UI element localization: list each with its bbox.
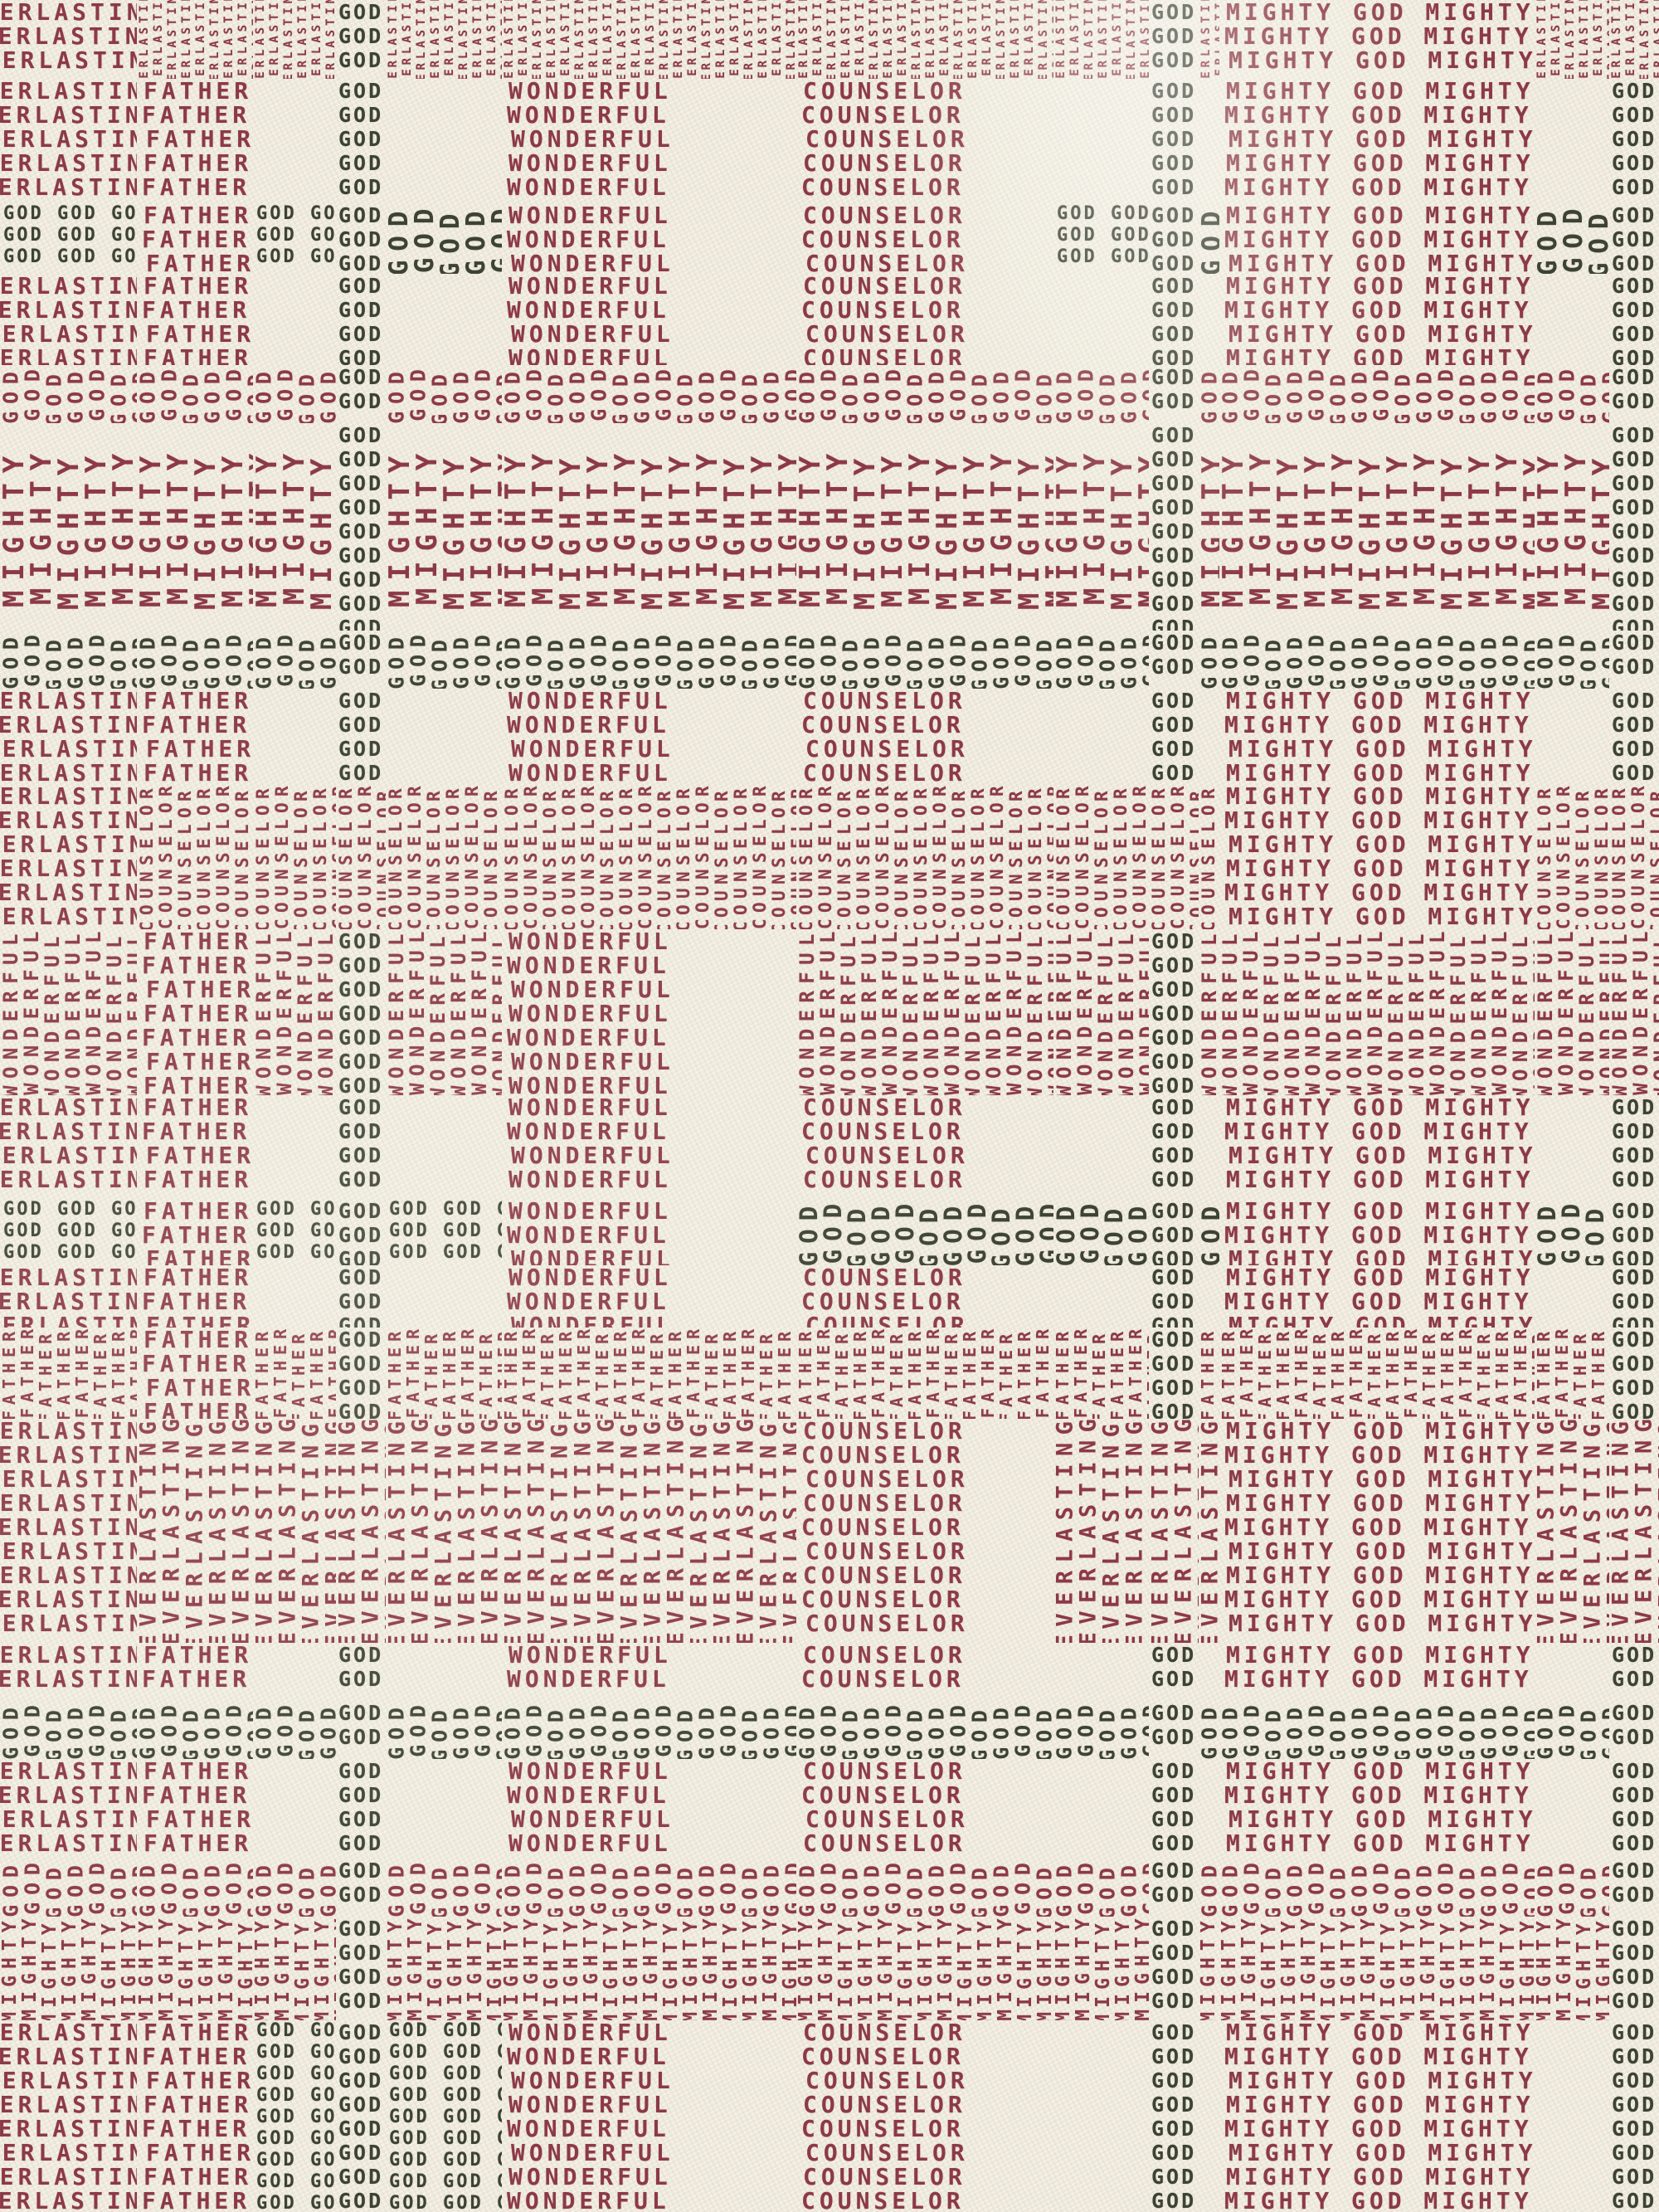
rotated-word-column-mighty: MIGHTY	[1594, 1917, 1609, 2020]
rotated-word-column-mighty: MIGHTY	[82, 423, 109, 631]
rotated-word-everlasting: EVERLASTING	[559, 0, 572, 79]
word-line-counselor: COUNSELOR	[796, 2117, 1052, 2141]
word-line-god: GOD	[336, 1917, 386, 1941]
plaid-cell-h-father: FATHERFATHERFATHERFATHER	[137, 274, 253, 365]
word-line-god: GOD	[336, 1400, 386, 1419]
rotated-word-counselor: COUNSELOR	[424, 785, 444, 929]
plaid-cell-v-father: FATHERFATHERFATHERFATHERFATHERFATHERFATH…	[0, 1328, 137, 1419]
rotated-word-column-wonderful: WONDERFUL	[274, 929, 294, 1095]
rotated-word-column-wonderful: WONDERFUL	[1406, 929, 1427, 1095]
rotated-word-father: FATHER	[36, 1328, 56, 1419]
rotated-word-everlasting: EVERLASTING	[594, 1419, 620, 1643]
rotated-word-god: GOD	[450, 1859, 474, 1917]
rotated-word-column-god: GOD	[1599, 1859, 1609, 1917]
rotated-word-column-god: GOD	[275, 631, 296, 689]
rotated-word-column-god: GOD	[386, 203, 411, 274]
plaid-cell-c-god: GODGODGODGOD	[336, 274, 386, 365]
rotated-word-god: GOD	[990, 631, 1014, 689]
rotated-word-column-mighty: MIGHTY	[621, 1917, 641, 2020]
rotated-word-column-father: FATHER	[557, 1328, 575, 1419]
rotated-word-god: GOD	[523, 1701, 547, 1757]
rotated-word-father: FATHER	[1383, 1328, 1403, 1419]
word-line-god: GOD	[1149, 1725, 1199, 1749]
word-line-father: FATHER	[137, 1119, 251, 1143]
rotated-word-father: FATHER	[1107, 1328, 1127, 1419]
rotated-word-counselor: COUNSELOR	[1573, 785, 1593, 929]
rotated-word-column-father: FATHER	[1090, 1328, 1108, 1419]
rotated-word-god: GOD	[1053, 1701, 1077, 1759]
rotated-word-god: GOD	[1598, 1859, 1610, 1917]
rotated-word-everlasting: EVERLASTING	[1610, 0, 1623, 79]
rotated-word-column-god: GOD	[1075, 631, 1097, 689]
word-line-god: GOD	[336, 592, 386, 616]
rotated-word-column-counselor: COUNSELOR	[597, 784, 616, 929]
word-line-god: GOD	[1149, 2189, 1199, 2212]
word-line-everlasting: EVERLASTING	[0, 2117, 135, 2141]
rotated-word-god: GOD	[1520, 1860, 1535, 1917]
word-line-repeated-god: GOD GOD GOD	[253, 203, 336, 225]
word-line-everlasting: EVERLASTING	[0, 1119, 135, 1143]
word-line-god: GOD	[336, 79, 386, 103]
word-line-counselor: COUNSELOR	[796, 151, 1053, 175]
rotated-word-column-counselor: COUNSELOR	[1073, 784, 1092, 929]
word-line-god: GOD	[336, 616, 386, 631]
rotated-word-god: GOD	[1456, 1703, 1480, 1759]
rotated-word-column-counselor: COUNSELOR	[1092, 784, 1111, 929]
plaid-cell-blank	[1053, 2020, 1149, 2212]
word-line-father: FATHER	[137, 761, 253, 784]
rotated-word-everlasting: EVERLASTING	[882, 0, 895, 79]
rotated-word-column-mighty: MIGHTY	[1520, 423, 1535, 631]
rotated-word-column-counselor: COUNSELOR	[1647, 784, 1659, 929]
rotated-word-god: GOD	[386, 365, 409, 423]
rotated-word-god: GOD	[566, 631, 590, 689]
rotated-word-god: GOD	[21, 631, 45, 687]
rotated-word-father: FATHER	[1511, 1328, 1530, 1418]
word-line-counselor: COUNSELOR	[796, 2020, 1053, 2044]
rotated-word-god: GOD	[274, 631, 298, 687]
rotated-word-counselor: COUNSELOR	[253, 784, 273, 929]
plaid-cell-v-mighty: MIGHTYMIGHTYMIGHTYMIGHTYMIGHTYMIGHTYMIGH…	[502, 423, 796, 631]
word-line-father: FATHER	[137, 346, 253, 365]
plaid-cell-v-god: GODGODGODGOD	[1535, 631, 1609, 689]
rotated-word-god: GOD	[0, 631, 23, 689]
rotated-word-god: GOD	[652, 365, 676, 421]
rotated-word-everlasting: EVERLASTING	[1638, 0, 1652, 79]
rotated-word-father: FATHER	[1237, 1328, 1257, 1418]
rotated-word-column-mighty: MIGHTY	[1199, 423, 1219, 631]
rotated-word-column-god: GOD	[108, 1859, 129, 1917]
rotated-word-column-god: GOD	[65, 1859, 86, 1917]
word-line-everlasting: EVERLASTING	[0, 1491, 137, 1515]
plaid-cell-v-god: GODGODGODGODGODGODGODGODGODGODGODGODGODG…	[1219, 631, 1535, 689]
rotated-word-column-god: GOD	[839, 1859, 861, 1917]
rotated-word-column-god: GOD	[86, 631, 108, 689]
rotated-word-god: GOD	[406, 1859, 431, 1915]
word-line-counselor: COUNSELOR	[799, 1611, 1053, 1635]
plaid-cell-v-everlasting: EVERLASTINGEVERLASTINGEVERLASTINGEVERLAS…	[253, 0, 336, 79]
rotated-word-everlasting: EVERLASTING	[322, 1419, 337, 1643]
rotated-word-god: GOD	[1391, 367, 1415, 423]
word-line-counselor: COUNSELOR	[799, 1143, 1053, 1167]
rotated-word-column-god: GOD	[1053, 1859, 1075, 1917]
rotated-word-column-god: GOD	[502, 631, 523, 689]
rotated-word-wonderful: WONDERFUL	[899, 929, 922, 1095]
rotated-word-god: GOD	[652, 1701, 676, 1757]
rotated-word-column-god: GOD	[904, 1701, 926, 1759]
rotated-word-god: GOD	[1370, 1859, 1394, 1915]
rotated-word-counselor: COUNSELOR	[213, 784, 233, 928]
rotated-word-mighty: MIGHTY	[521, 1917, 542, 2020]
plaid-cell-v-wonderful: WONDERFULWONDERFULWONDERFULWONDERFULWOND…	[796, 929, 1053, 1095]
word-line-wonderful: WONDERFUL	[504, 127, 796, 151]
rotated-word-father: FATHER	[386, 1328, 405, 1419]
rotated-word-god: GOD	[566, 1701, 590, 1759]
word-line-wonderful: WONDERFUL	[502, 1026, 795, 1050]
rotated-word-column-mighty: MIGHTY	[611, 423, 639, 631]
rotated-word-god: GOD	[946, 1701, 971, 1757]
rotated-word-god: GOD	[158, 1701, 182, 1757]
rotated-word-mighty: MIGHTY	[955, 1917, 976, 2020]
rotated-word-father: FATHER	[1310, 1328, 1330, 1419]
word-line-god: GOD	[1149, 1701, 1199, 1725]
rotated-word-column-god: GOD	[1140, 1701, 1149, 1759]
word-line-god: GOD	[1149, 1223, 1199, 1247]
plaid-cell-v-counselor: COUNSELORCOUNSELORCOUNSELORCOUNSELORCOUN…	[137, 784, 253, 929]
rotated-word-god: GOD	[903, 367, 927, 423]
rotated-word-column-everlasting: EVERLASTING	[359, 1419, 382, 1643]
rotated-word-column-mighty: MIGHTY	[542, 1917, 562, 2020]
plaid-cell-c-god: GODGODGODGOD	[336, 1328, 386, 1419]
rotated-word-god: GOD	[925, 365, 949, 423]
rotated-word-column-god: GOD	[796, 1859, 818, 1917]
plaid-cell-v-counselor: COUNSELORCOUNSELORCOUNSELOR	[336, 784, 386, 929]
plaid-cell-h-counselor: COUNSELORCOUNSELORCOUNSELORCOUNSELOR	[796, 1759, 1053, 1859]
rotated-word-column-god: GOD	[1306, 631, 1327, 689]
rotated-word-god: GOD	[42, 1703, 66, 1759]
word-line-god: GOD	[336, 203, 386, 227]
word-line-repeated-mighty_god: MIGHTY GOD MIGHTY GOD	[1222, 1611, 1535, 1635]
rotated-word-god: GOD	[882, 365, 906, 421]
rotated-word-mighty: MIGHTY	[975, 1917, 996, 2020]
rotated-word-god: GOD	[129, 631, 138, 689]
rotated-word-father: FATHER	[325, 1328, 336, 1418]
rotated-word-mighty: MIGHTY	[1477, 1917, 1499, 2020]
plaid-cell-blank	[253, 689, 336, 784]
rotated-word-god: GOD	[781, 1859, 797, 1915]
rotated-word-god: GOD	[1074, 1701, 1098, 1757]
rotated-word-column-god: GOD	[1535, 365, 1556, 423]
rotated-word-mighty: MIGHTY	[581, 1917, 602, 2020]
rotated-word-column-father: FATHER	[55, 1328, 73, 1419]
rotated-word-column-counselor: COUNSELOR	[815, 784, 834, 929]
rotated-word-everlasting: EVERLASTING	[531, 0, 544, 79]
word-line-repeated-mighty_god: MIGHTY GOD MIGHTY GOD	[1219, 2020, 1535, 2044]
word-line-god: GOD	[336, 631, 386, 655]
word-line-repeated-mighty_god: MIGHTY GOD MIGHTY GOD	[1219, 274, 1535, 298]
word-line-repeated-god: GOD GOD GOD GOD	[0, 203, 137, 225]
rotated-word-column-father: FATHER	[308, 1328, 326, 1419]
rotated-word-god: GOD	[860, 1859, 884, 1917]
rotated-word-god: GOD	[295, 1860, 319, 1917]
rotated-word-everlasting: EVERLASTING	[415, 0, 428, 79]
plaid-cell-v-god: GOD	[1199, 1701, 1219, 1759]
plaid-cell-v-wonderful: WONDERFULWONDERFULWONDERFULWONDERFULWOND…	[386, 929, 502, 1095]
rotated-word-column-mighty: MIGHTY	[584, 423, 611, 631]
rotated-word-everlasting: EVERLASTING	[1125, 0, 1138, 79]
word-line-repeated-mighty_god: MIGHTY GOD MIGHTY GOD	[1219, 2165, 1535, 2189]
plaid-cell-c-god: GODGODGODGOD	[336, 1759, 386, 1859]
rotated-word-column-god: GOD	[844, 1199, 868, 1265]
plaid-cell-blank	[1535, 1759, 1609, 1859]
rotated-word-god: GOD	[760, 1859, 784, 1917]
rotated-word-god: GOD	[1391, 632, 1415, 689]
word-line-god: GOD	[1149, 1119, 1199, 1143]
plaid-cell-c-god: GODGODGODGOD	[1609, 1095, 1659, 1199]
plaid-cell-v-wonderful: WONDERFULWONDERFULWONDERFULWONDERFUL	[1535, 929, 1609, 1095]
rotated-word-god: GOD	[1499, 631, 1523, 687]
rotated-word-wonderful: WONDERFUL	[406, 929, 429, 1095]
rotated-word-column-counselor: COUNSELOR	[1111, 784, 1130, 929]
rotated-word-column-mighty: MIGHTY	[445, 1917, 465, 2020]
rotated-word-god: GOD	[652, 631, 676, 687]
rotated-word-god: GOD	[493, 1860, 503, 1917]
rotated-word-wonderful: WONDERFUL	[920, 929, 943, 1095]
rotated-word-wonderful: WONDERFUL	[294, 929, 317, 1095]
rotated-word-column-father: FATHER	[1402, 1328, 1420, 1419]
rotated-word-god: GOD	[544, 1860, 568, 1917]
rotated-word-god: GOD	[428, 1703, 452, 1759]
word-line-father: FATHER	[137, 1265, 253, 1289]
rotated-word-god: GOD	[1584, 204, 1610, 274]
word-line-god: GOD	[1149, 151, 1199, 175]
rotated-word-column-everlasting: EVERLASTING	[1591, 0, 1605, 79]
rotated-word-column-god: GOD	[969, 1701, 990, 1759]
rotated-word-column-wonderful: WONDERFUL	[1095, 929, 1116, 1095]
rotated-word-column-everlasting: EVERLASTING	[1100, 1419, 1123, 1643]
word-line-god: GOD	[1149, 103, 1199, 127]
rotated-word-column-god: GOD	[318, 365, 336, 423]
rotated-word-god: GOD	[1326, 1860, 1350, 1917]
rotated-word-counselor: COUNSELOR	[559, 784, 579, 929]
word-line-god: GOD	[1149, 1859, 1199, 1883]
rotated-word-column-counselor: COUNSELOR	[336, 784, 355, 929]
rotated-word-god: GOD	[1305, 1701, 1329, 1757]
plaid-cell-blank	[253, 79, 336, 203]
rotated-word-column-god: GOD	[674, 631, 696, 689]
word-line-repeated-mighty_god: MIGHTY GOD MIGHTY GOD	[1219, 0, 1535, 24]
rotated-word-column-god: GOD	[989, 1199, 1013, 1265]
word-line-god: GOD	[336, 2141, 386, 2165]
rotated-word-column-god: GOD	[820, 1199, 844, 1265]
rotated-word-column-everlasting: EVERLASTING	[253, 1419, 276, 1643]
plaid-row: MIGHTYMIGHTYMIGHTYMIGHTYMIGHTYMIGHTYMIGH…	[0, 1917, 1659, 2020]
rotated-word-mighty: MIGHTY	[1338, 1917, 1360, 2020]
word-line-god: GOD	[1149, 447, 1199, 471]
rotated-word-column-mighty: MIGHTY	[1093, 1917, 1113, 2020]
plaid-cell-v-god: GODGODGODGODGODGODGODGODGODGODGODGODGODG…	[502, 631, 796, 689]
word-line-repeated-god: GOD GOD GOD	[253, 225, 336, 246]
rotated-word-everlasting: EVERLASTING	[868, 0, 881, 79]
rotated-word-god: GOD	[1199, 631, 1219, 689]
plaid-cell-c-god: GODGOD	[1609, 1701, 1659, 1759]
rotated-word-father: FATHER	[702, 1328, 722, 1419]
rotated-word-column-god: GOD	[947, 1701, 969, 1759]
rotated-word-column-everlasting: EVERLASTING	[1053, 0, 1068, 79]
word-line-repeated-god: GOD GOD GOD	[386, 2085, 502, 2107]
rotated-word-column-mighty: MIGHTY	[1498, 1917, 1518, 2020]
plaid-cell-v-god: GODGODGODGOD	[1535, 365, 1609, 423]
word-line-repeated-mighty_god: MIGHTY GOD MIGHTY GOD	[1219, 689, 1535, 713]
plaid-cell-v-god: GODGODGODGOD	[1535, 1199, 1609, 1265]
rotated-word-column-mighty: MIGHTY	[197, 1917, 216, 2020]
plaid-cell-v-everlasting: EVERLASTINGEVERLASTINGEVERLASTING	[336, 1419, 386, 1643]
rotated-word-god: GOD	[1096, 632, 1120, 689]
rotated-word-column-god: GOD	[653, 1859, 674, 1917]
rotated-word-god: GOD	[609, 1703, 633, 1759]
word-line-god: GOD	[336, 2117, 386, 2141]
word-line-wonderful: WONDERFUL	[502, 1095, 796, 1119]
rotated-word-everlasting: EVERLASTING	[545, 0, 558, 79]
rotated-word-god: GOD	[253, 1859, 276, 1917]
rotated-word-father: FATHER	[720, 1328, 740, 1419]
plaid-cell-h-wonderful: WONDERFULWONDERFULWONDERFULWONDERFUL	[502, 1759, 796, 1859]
rotated-word-column-god: GOD	[917, 1199, 941, 1265]
word-line-god: GOD	[1609, 1265, 1659, 1289]
rotated-word-counselor: COUNSELOR	[635, 784, 655, 928]
rotated-word-column-god: GOD	[180, 1859, 202, 1917]
rotated-word-everlasting: EVERLASTING	[839, 0, 853, 79]
rotated-word-column-wonderful: WONDERFUL	[21, 929, 41, 1095]
rotated-word-god: GOD	[137, 1701, 160, 1759]
rotated-word-column-god: GOD	[1118, 365, 1140, 423]
rotated-word-column-counselor: COUNSELOR	[731, 784, 750, 929]
rotated-word-god: GOD	[817, 1859, 841, 1915]
word-line-counselor: COUNSELOR	[796, 79, 1053, 103]
rotated-word-god: GOD	[717, 1701, 741, 1757]
plaid-cell-h-mighty_god: MIGHTY GOD MIGHTY GODMIGHTY GOD MIGHTY G…	[1219, 689, 1535, 784]
word-line-father: FATHER	[137, 203, 253, 227]
plaid-cell-c-god: GODGODGODGOD	[336, 1917, 386, 2020]
rotated-word-god: GOD	[1139, 631, 1150, 687]
rotated-word-god: GOD	[1499, 365, 1523, 421]
word-line-god: GOD	[1609, 1965, 1659, 1989]
rotated-word-counselor: COUNSELOR	[854, 784, 873, 929]
word-line-repeated-god: GOD GOD GOD	[386, 2107, 502, 2128]
word-line-counselor: COUNSELOR	[796, 1095, 1053, 1119]
rotated-word-column-wonderful: WONDERFUL	[921, 929, 941, 1095]
rotated-word-column-god: GOD	[223, 1859, 245, 1917]
rotated-word-god: GOD	[738, 367, 762, 423]
rotated-word-god: GOD	[1096, 1860, 1120, 1917]
plaid-cell-h-counselor: COUNSELORCOUNSELORCOUNSELORCOUNSELOR	[796, 274, 1053, 365]
rotated-word-column-wonderful: WONDERFUL	[1447, 929, 1468, 1095]
rotated-word-column-mighty: MIGHTY	[701, 1917, 721, 2020]
rotated-word-wonderful: WONDERFUL	[489, 929, 503, 1095]
rotated-word-column-god: GOD	[782, 365, 796, 423]
rotated-word-column-god: GOD	[0, 1701, 22, 1759]
rotated-word-column-father: FATHER	[869, 1328, 888, 1419]
rotated-word-counselor: COUNSELOR	[232, 785, 252, 929]
rotated-word-father: FATHER	[1570, 1328, 1590, 1419]
plaid-cell-blank	[1535, 2020, 1609, 2212]
word-line-repeated-god: GOD GOD GOD	[253, 2085, 336, 2107]
word-line-repeated-mighty_god: MIGHTY GOD MIGHTY GOD	[1219, 808, 1533, 832]
word-line-god: GOD	[1149, 2117, 1199, 2141]
rotated-word-everlasting: EVERLASTING	[573, 0, 586, 79]
plaid-cell-g-god: GOD GOD GODGOD GOD GODGOD GOD GODGOD GOD…	[253, 2020, 336, 2212]
word-line-father: FATHER	[137, 1167, 253, 1191]
rotated-word-counselor: COUNSELOR	[968, 784, 988, 929]
rotated-word-wonderful: WONDERFUL	[1199, 929, 1219, 1095]
rotated-word-mighty: MIGHTY	[1278, 1917, 1300, 2020]
rotated-word-everlasting: EVERLASTING	[1099, 1419, 1125, 1643]
plaid-cell-c-god: GODGODGODGODGOD	[1149, 79, 1199, 203]
rotated-word-column-god: GOD	[429, 1859, 450, 1917]
rotated-word-column-god: GOD	[1219, 631, 1241, 689]
word-line-repeated-mighty_god: MIGHTY GOD MIGHTY GOD	[1222, 251, 1535, 274]
rotated-word-column-god: GOD	[947, 631, 969, 689]
rotated-word-god: GOD	[544, 632, 568, 689]
word-line-god: GOD	[336, 1807, 386, 1831]
rotated-word-column-counselor: COUNSELOR	[578, 784, 597, 929]
rotated-word-column-god: GOD	[883, 365, 904, 423]
rotated-word-wonderful: WONDERFUL	[1239, 929, 1262, 1095]
word-line-repeated-mighty_god: MIGHTY GOD MIGHTY GOD	[1222, 322, 1535, 346]
word-line-repeated-mighty_god: MIGHTY GOD MIGHTY GOD	[1219, 761, 1535, 784]
rotated-word-column-wonderful: WONDERFUL	[1199, 929, 1219, 1095]
rotated-word-column-god: GOD	[893, 1199, 917, 1265]
plaid-cell-blank	[1199, 1759, 1219, 1859]
rotated-word-column-god: GOD	[43, 365, 65, 423]
rotated-word-column-god: GOD	[674, 1859, 696, 1917]
word-line-everlasting: EVERLASTING	[0, 856, 137, 880]
word-line-repeated-mighty_god: MIGHTY GOD MIGHTY GOD	[1219, 1167, 1535, 1191]
rotated-word-mighty: MIGHTY	[1378, 1917, 1399, 2020]
rotated-word-column-wonderful: WONDERFUL	[1261, 929, 1282, 1095]
word-line-everlasting: EVERLASTING	[0, 79, 137, 103]
rotated-word-column-mighty: MIGHTY	[177, 1917, 197, 2020]
rotated-word-column-mighty: MIGHTY	[1199, 1917, 1219, 2020]
rotated-word-god: GOD	[1033, 632, 1054, 689]
word-line-repeated-mighty_god: MIGHTY GOD MIGHTY GOD	[1222, 904, 1535, 928]
plaid-row: FATHERFATHERFATHERFATHERFATHERFATHERFATH…	[0, 1328, 1659, 1419]
rotated-word-father: FATHER	[54, 1328, 74, 1419]
plaid-cell-h-father: FATHERFATHERFATHERFATHER	[137, 689, 253, 784]
word-line-god: GOD	[336, 24, 386, 48]
rotated-word-column-father: FATHER	[1457, 1328, 1475, 1419]
rotated-word-column-god: GOD	[86, 365, 108, 423]
word-line-wonderful: WONDERFUL	[502, 1167, 796, 1191]
rotated-word-column-everlasting: EVERLASTING	[530, 0, 544, 79]
plaid-cell-c-god: GODGODGODGOD	[1609, 1917, 1659, 2020]
rotated-word-column-father: FATHER	[924, 1328, 942, 1419]
rotated-word-column-counselor: COUNSELOR	[788, 784, 796, 929]
rotated-word-god: GOD	[386, 1859, 409, 1917]
rotated-word-column-father: FATHER	[109, 1328, 128, 1419]
rotated-word-everlasting: EVERLASTING	[924, 0, 937, 79]
plaid-cell-c-god: GODGOD	[1149, 631, 1199, 689]
rotated-word-column-mighty: MIGHTY	[916, 1917, 936, 2020]
plaid-cell-v-mighty: MIGHTYMIGHTYMIGHTYMIGHTYMIGHTYMIGHTYMIGH…	[796, 1917, 1053, 2020]
rotated-word-column-god: GOD	[43, 1859, 65, 1917]
word-line-god: GOD	[1149, 2068, 1199, 2093]
word-line-everlasting: EVERLASTING	[2, 904, 137, 928]
rotated-word-god: GOD	[1434, 631, 1458, 687]
rotated-word-god: GOD	[695, 365, 719, 423]
word-line-god: GOD	[336, 1247, 386, 1265]
rotated-word-column-mighty: MIGHTY	[529, 423, 557, 631]
